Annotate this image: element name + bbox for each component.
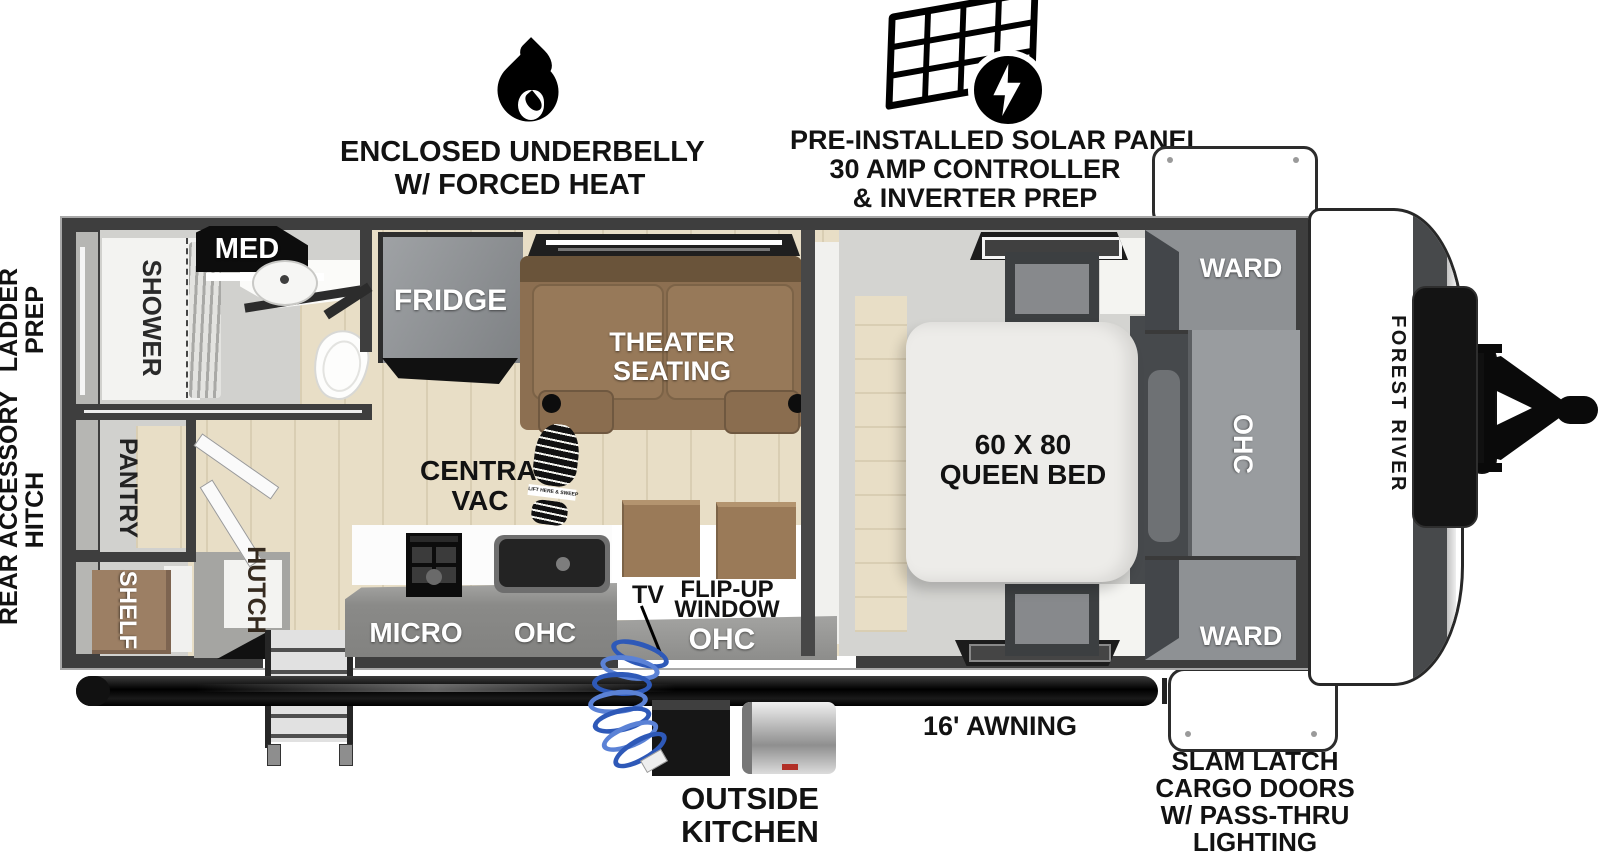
rear-hitch-label: REAR ACCESSORY HITCH — [0, 395, 48, 625]
theater-line2: SEATING — [560, 357, 784, 386]
tank-valve — [782, 764, 798, 770]
bedroom-doorway — [815, 242, 839, 644]
pantry-wood — [136, 426, 188, 548]
fridge-label: FRIDGE — [383, 285, 518, 317]
boot-heel — [530, 499, 569, 527]
rear-hitch-line1: REAR ACCESSORY — [0, 395, 22, 625]
ward-top-label: WARD — [1189, 254, 1293, 283]
hitch-crossbar — [1484, 350, 1495, 468]
window-slit — [558, 248, 770, 251]
solar-cell — [930, 9, 960, 37]
awning-endcap — [76, 676, 110, 706]
sofa-back — [520, 256, 802, 282]
solar-label: PRE-INSTALLED SOLAR PANEL 30 AMP CONTROL… — [790, 126, 1160, 213]
flip-up-window-label: FLIP-UP WINDOW — [668, 580, 786, 620]
ward-cabinet-top: WARD — [1145, 230, 1296, 334]
slam-latch-label: SLAM LATCH CARGO DOORS W/ PASS-THRU LIGH… — [1120, 748, 1390, 856]
step-tread — [271, 670, 347, 674]
pantry-right-wall — [186, 420, 196, 560]
solar-cell — [894, 44, 924, 72]
floorplan-canvas: ENCLOSED UNDERBELLY W/ FORCED HEAT PRE-I… — [0, 0, 1600, 860]
ottoman — [716, 502, 796, 579]
solar-line1: PRE-INSTALLED SOLAR PANEL — [790, 126, 1160, 155]
window-above-sofa — [528, 234, 800, 256]
theater-line1: THEATER — [560, 328, 784, 357]
boot-band: LIFT HERE & SWEEP — [527, 484, 576, 501]
solar-cell — [1001, 0, 1031, 25]
ottoman — [622, 500, 700, 577]
ohc-kitchen-label: OHC — [505, 618, 585, 648]
screw-icon — [1293, 157, 1299, 163]
awning-label: 16' AWNING — [900, 712, 1100, 741]
ward-cabinet-bottom: WARD — [1145, 556, 1296, 660]
solar-line3: & INVERTER PREP — [790, 184, 1160, 213]
lightning-bolt-icon — [968, 50, 1048, 130]
ladder-prep-line1: LADDER — [0, 240, 22, 400]
nightstand-face — [1015, 594, 1089, 644]
shelf-label: SHELF — [116, 555, 140, 665]
nightstand-face — [1015, 264, 1089, 314]
bed-line1: 60 X 80 — [930, 430, 1116, 460]
nightstand — [1005, 584, 1099, 656]
hitch-nub — [1478, 344, 1502, 353]
outside-kitchen-line2: KITCHEN — [620, 815, 880, 848]
ohc-entry-label: OHC — [680, 624, 764, 656]
solar-cell — [966, 2, 996, 30]
ward-bottom-label: WARD — [1189, 622, 1293, 651]
solar-cell — [895, 15, 925, 43]
bedroom-wood-strip — [855, 296, 907, 632]
bathroom-sink — [252, 260, 318, 306]
underbelly-label: ENCLOSED UNDERBELLY W/ FORCED HEAT — [340, 136, 700, 202]
micro-label: MICRO — [358, 618, 474, 648]
step-foot — [267, 744, 281, 766]
stove-center — [426, 569, 442, 585]
screw-icon — [1185, 731, 1191, 737]
step-tread — [271, 648, 347, 652]
stove-burner — [412, 547, 432, 563]
water-hose-icon — [584, 642, 670, 772]
sofa-armrest — [724, 390, 800, 434]
boot-sole — [531, 422, 582, 489]
hitch-nub — [1478, 463, 1502, 472]
step-foot — [339, 744, 353, 766]
brand-label: FOREST RIVER — [1384, 274, 1408, 534]
cupholder-icon — [542, 394, 561, 413]
solar-line2: 30 AMP CONTROLLER — [790, 155, 1160, 184]
bedroom-divider-wall — [801, 230, 815, 656]
pantry-label: PANTRY — [115, 418, 141, 558]
slam-latch-line4: LIGHTING — [1120, 829, 1390, 856]
rear-wall-panel — [76, 420, 98, 550]
shower-curtain-rail — [186, 238, 188, 398]
hutch-label: HUTCH — [243, 535, 269, 645]
outside-kitchen-label: OUTSIDE KITCHEN — [620, 782, 880, 848]
central-vac-line1: CENTRAL — [420, 456, 540, 486]
slam-latch-line1: SLAM LATCH — [1120, 748, 1390, 775]
ward-side-panel — [1145, 230, 1179, 330]
nightstand — [1005, 252, 1099, 324]
slam-latch-line3: W/ PASS-THRU — [1120, 802, 1390, 829]
ohc-bedroom-label: OHC — [1229, 404, 1257, 484]
fridge: FRIDGE — [378, 232, 523, 363]
screw-icon — [1311, 731, 1317, 737]
ward-side-panel — [1145, 560, 1179, 660]
solar-cell — [929, 38, 959, 66]
stove-burner — [436, 547, 456, 563]
theater-label: THEATER SEATING — [560, 328, 784, 386]
tv-label: TV — [624, 582, 672, 609]
ladder-prep-line2: PREP — [22, 240, 48, 400]
bathroom-wall-slit — [84, 410, 362, 413]
outside-kitchen-line1: OUTSIDE — [620, 782, 880, 815]
underbelly-line1: ENCLOSED UNDERBELLY — [340, 136, 700, 169]
solar-cell — [893, 73, 923, 101]
flip-up-line2: WINDOW — [668, 600, 786, 620]
shower-label: SHOWER — [138, 233, 166, 403]
sink-drain — [280, 275, 289, 284]
stove — [406, 533, 462, 597]
bed-line2: QUEEN BED — [930, 460, 1116, 490]
rear-hitch-line2: HITCH — [22, 395, 48, 625]
ladder-prep-label: LADDER PREP — [0, 240, 48, 400]
toilet-seat — [318, 337, 366, 396]
sink-basin — [499, 539, 605, 587]
bed-pillow — [1148, 370, 1180, 542]
kitchen-sink — [494, 535, 610, 593]
tank-endcap — [742, 702, 752, 774]
bolt-glyph — [990, 64, 1024, 116]
queen-bed-label: 60 X 80 QUEEN BED — [930, 430, 1116, 490]
propane-cover — [1412, 286, 1478, 528]
cargo-door-top — [1152, 146, 1318, 226]
hitch-ball-mount — [1556, 396, 1598, 424]
flame-icon — [496, 40, 560, 134]
underbelly-line2: W/ FORCED HEAT — [340, 169, 700, 202]
outside-kitchen-tank — [742, 702, 836, 774]
screw-icon — [1167, 157, 1173, 163]
step-tread — [271, 714, 347, 718]
stove-knob-strip — [410, 536, 458, 542]
slam-latch-line2: CARGO DOORS — [1120, 775, 1390, 802]
faucet-icon — [556, 557, 570, 571]
solar-cell — [928, 67, 958, 95]
rear-wall-slit — [80, 247, 85, 395]
window-slit — [546, 240, 782, 245]
awning-arm — [1162, 678, 1167, 704]
step-tread — [271, 734, 347, 738]
